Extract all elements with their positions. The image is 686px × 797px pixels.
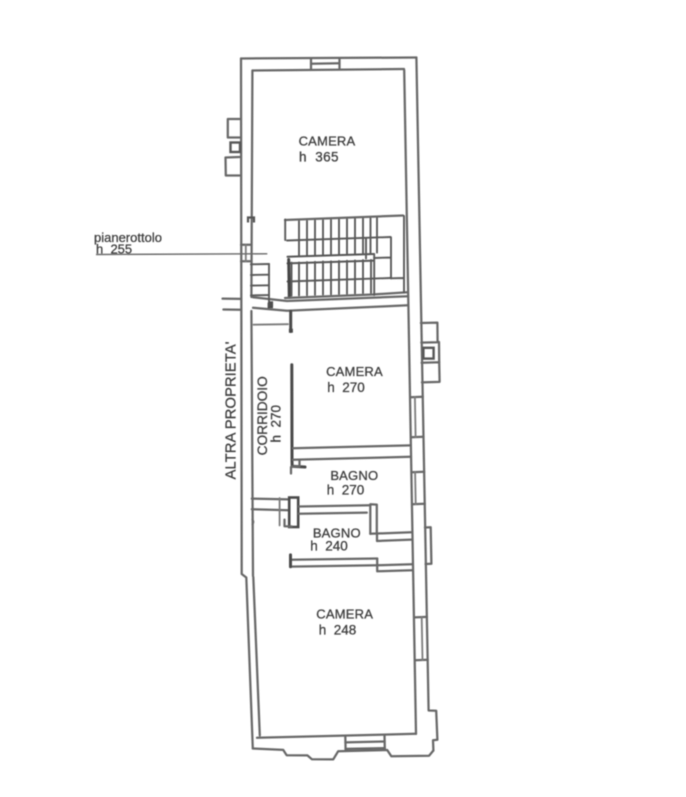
- svg-text:h 248: h 248: [319, 623, 357, 638]
- svg-text:h 270: h 270: [269, 405, 284, 443]
- svg-text:CAMERA: CAMERA: [326, 364, 383, 379]
- svg-text:h 255: h 255: [96, 242, 132, 257]
- svg-text:CAMERA: CAMERA: [316, 607, 373, 622]
- svg-text:h 270: h 270: [327, 380, 365, 395]
- svg-text:h 240: h 240: [310, 539, 348, 554]
- svg-text:ALTRA PROPRIETA': ALTRA PROPRIETA': [224, 341, 240, 479]
- svg-text:CAMERA: CAMERA: [299, 133, 356, 148]
- svg-text:h 365: h 365: [299, 150, 339, 165]
- svg-text:h 270: h 270: [327, 482, 365, 497]
- svg-text:BAGNO: BAGNO: [330, 468, 378, 483]
